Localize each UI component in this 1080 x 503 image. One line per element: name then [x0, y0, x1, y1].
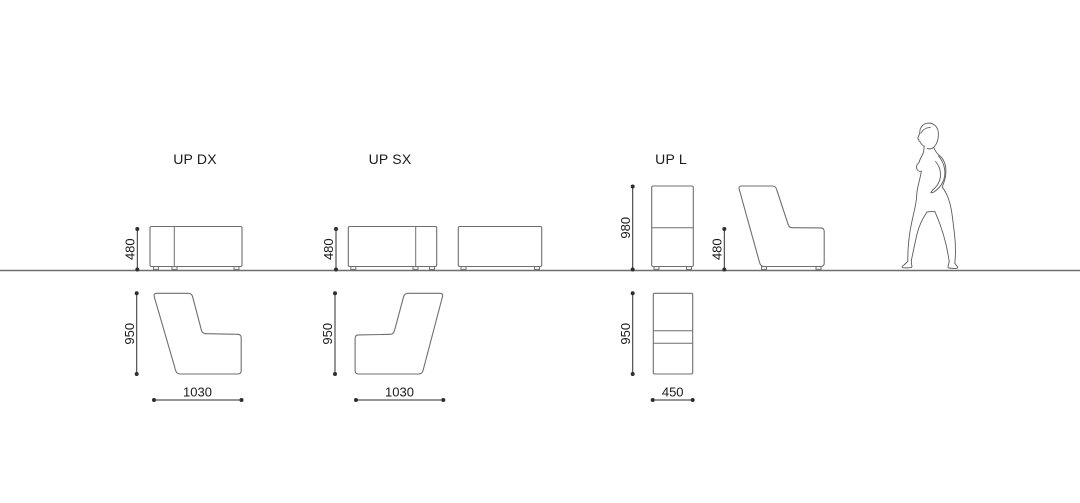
upl-plan-view: [653, 293, 692, 374]
upl-overall-height-value: 980: [618, 217, 633, 239]
dim-dot: [691, 398, 695, 402]
upl-width-value: 450: [662, 384, 684, 399]
dim-dot: [354, 398, 358, 402]
upsx-label: UP SX: [369, 151, 412, 167]
upl-foot: [762, 267, 767, 270]
upl-plan-outline: [653, 293, 692, 374]
upl-front-view: [652, 186, 694, 269]
updx-profile-height-dimension: 950: [122, 291, 139, 376]
upl-foot: [654, 267, 659, 270]
updx-seat-height-value: 480: [123, 238, 138, 260]
updx-side-view: [154, 293, 241, 374]
dim-dot: [135, 291, 139, 295]
technical-drawing-canvas: UP DX 480 950: [0, 0, 1080, 503]
upsx-seat-height-value: 480: [321, 238, 336, 260]
dim-dot: [441, 398, 445, 402]
updx-foot: [154, 267, 159, 270]
updx-width-dimension: 1030: [152, 384, 244, 402]
upl-seat-height-dimension: 480: [710, 227, 727, 272]
dim-dot: [135, 268, 139, 272]
upsx-profile-height-dimension: 950: [320, 291, 337, 376]
dim-dot: [240, 398, 244, 402]
updx-section: UP DX 480 950: [122, 151, 244, 402]
dim-dot: [631, 372, 635, 376]
updx-foot: [172, 267, 177, 270]
upsx-back-outline: [458, 227, 541, 267]
upsx-width-value: 1030: [385, 384, 414, 399]
dim-dot: [333, 372, 337, 376]
upsx-height-dimension: 480: [321, 227, 338, 272]
upl-side-outline: [739, 186, 824, 267]
dim-dot: [651, 398, 655, 402]
updx-label: UP DX: [173, 151, 217, 167]
upsx-side-view: [355, 293, 443, 374]
updx-width-value: 1030: [183, 384, 212, 399]
upl-profile-height-dimension: 950: [618, 291, 635, 376]
upsx-profile-height-value: 950: [320, 323, 335, 345]
upsx-foot: [461, 267, 466, 270]
dim-dot: [631, 268, 635, 272]
dim-dot: [334, 227, 338, 231]
upsx-front-view: [348, 227, 436, 270]
upsx-foot: [351, 267, 356, 270]
dim-dot: [631, 291, 635, 295]
upl-foot: [816, 267, 821, 270]
updx-foot: [234, 267, 239, 270]
upsx-section: UP SX 480 950: [320, 151, 542, 402]
dim-dot: [333, 291, 337, 295]
upsx-back-view: [458, 227, 541, 270]
dim-dot: [334, 268, 338, 272]
dim-dot: [152, 398, 156, 402]
dim-dot: [631, 185, 635, 189]
upl-front-outline: [652, 186, 694, 267]
standing-woman-icon: [902, 123, 958, 268]
furniture-dimension-diagram: UP DX 480 950: [0, 0, 1080, 503]
upl-profile-height-value: 950: [618, 323, 633, 345]
upsx-foot: [413, 267, 418, 270]
dim-dot: [722, 227, 726, 231]
upl-side-view: [739, 186, 824, 269]
upsx-front-outline: [348, 227, 436, 267]
updx-front-outline: [150, 227, 242, 267]
upl-label: UP L: [655, 151, 687, 167]
upsx-width-dimension: 1030: [354, 384, 445, 402]
upsx-foot: [535, 267, 540, 270]
updx-front-view: [150, 227, 242, 270]
updx-height-dimension: 480: [123, 227, 140, 272]
upl-section: UP L 980 480: [618, 151, 824, 402]
dim-dot: [135, 372, 139, 376]
upsx-foot: [430, 267, 435, 270]
updx-profile-height-value: 950: [122, 323, 137, 345]
upl-overall-height-dimension: 980: [618, 185, 635, 272]
upl-seat-height-value: 480: [710, 238, 725, 260]
upl-width-dimension: 450: [651, 384, 695, 402]
dim-dot: [135, 227, 139, 231]
upl-foot: [687, 267, 692, 270]
dim-dot: [722, 268, 726, 272]
